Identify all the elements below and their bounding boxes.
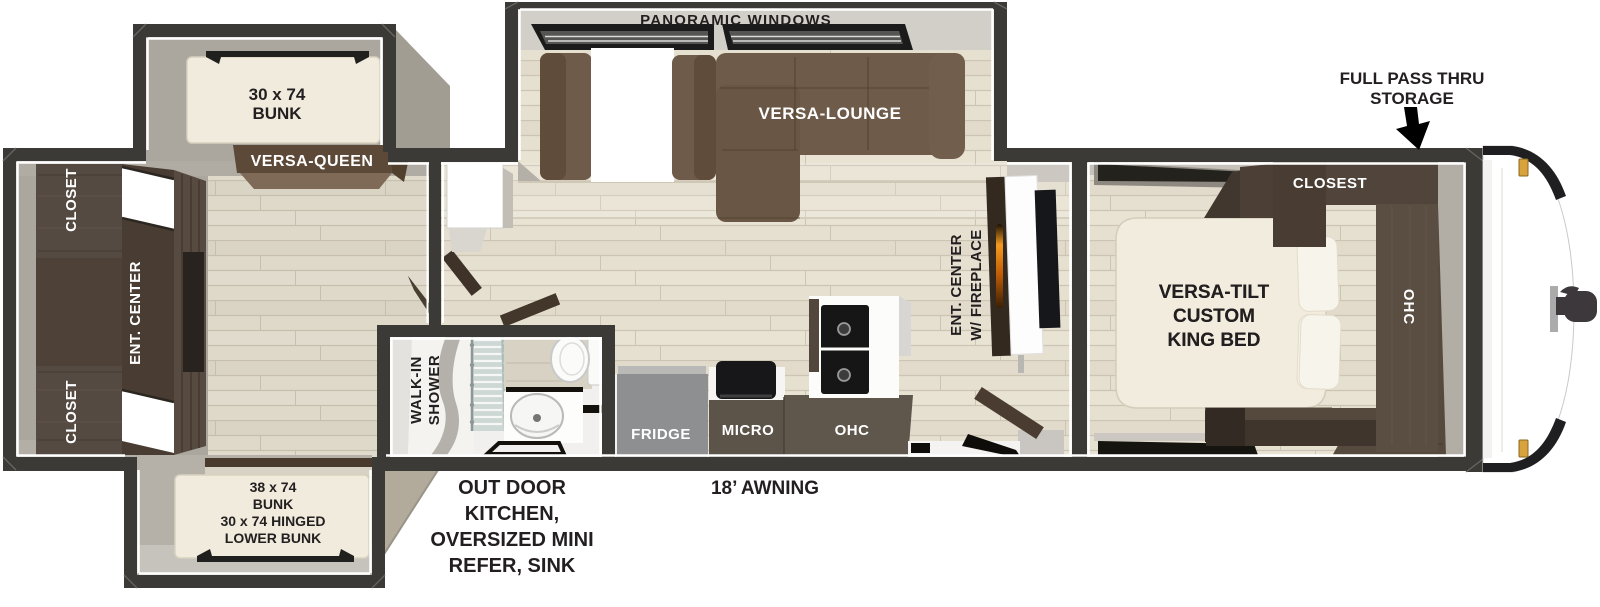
- svg-text:SHOWER: SHOWER: [426, 355, 443, 426]
- svg-text:VERSA-TILT: VERSA-TILT: [1159, 282, 1270, 303]
- svg-text:FRIDGE: FRIDGE: [631, 426, 691, 443]
- svg-text:OUT DOOR: OUT DOOR: [458, 477, 566, 499]
- svg-text:CUSTOM: CUSTOM: [1173, 306, 1255, 327]
- svg-text:OVERSIZED MINI: OVERSIZED MINI: [430, 529, 593, 551]
- svg-text:38 x 74: 38 x 74: [250, 479, 297, 495]
- svg-text:STORAGE: STORAGE: [1370, 89, 1454, 108]
- svg-text:CLOSET: CLOSET: [63, 380, 80, 444]
- svg-text:MICRO: MICRO: [722, 422, 775, 439]
- svg-text:LOWER BUNK: LOWER BUNK: [225, 530, 321, 546]
- svg-text:CLOSET: CLOSET: [63, 168, 80, 232]
- svg-text:W/ FIREPLACE: W/ FIREPLACE: [968, 229, 985, 340]
- svg-text:REFER, SINK: REFER, SINK: [449, 555, 576, 577]
- svg-text:ENT. CENTER: ENT. CENTER: [948, 234, 965, 336]
- svg-text:CLOSEST: CLOSEST: [1293, 175, 1367, 192]
- svg-text:OHC: OHC: [1400, 289, 1417, 325]
- svg-text:PANORAMIC WINDOWS: PANORAMIC WINDOWS: [640, 12, 832, 29]
- svg-text:WALK-IN: WALK-IN: [408, 356, 425, 424]
- svg-text:KITCHEN,: KITCHEN,: [465, 503, 559, 525]
- svg-text:ENT. CENTER: ENT. CENTER: [127, 261, 144, 365]
- svg-text:VERSA-LOUNGE: VERSA-LOUNGE: [759, 104, 902, 123]
- svg-text:VERSA-QUEEN: VERSA-QUEEN: [251, 153, 374, 170]
- svg-text:18’ AWNING: 18’ AWNING: [711, 478, 819, 499]
- svg-text:KING BED: KING BED: [1168, 330, 1261, 351]
- svg-text:BUNK: BUNK: [252, 104, 302, 123]
- svg-text:30 x 74: 30 x 74: [249, 85, 306, 104]
- svg-text:OHC: OHC: [835, 422, 870, 439]
- svg-text:FULL PASS THRU: FULL PASS THRU: [1340, 69, 1485, 88]
- svg-text:BUNK: BUNK: [253, 496, 293, 512]
- svg-text:30 x 74 HINGED: 30 x 74 HINGED: [220, 513, 325, 529]
